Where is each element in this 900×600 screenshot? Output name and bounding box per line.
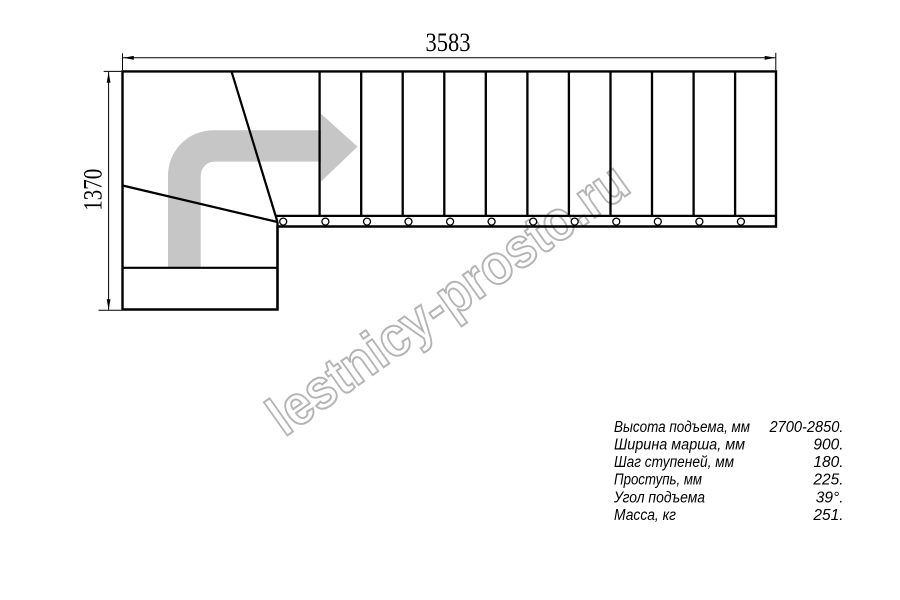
svg-text:Шаг ступеней, мм: Шаг ступеней, мм xyxy=(614,454,734,471)
svg-text:Проступь, мм: Проступь, мм xyxy=(614,472,702,489)
svg-text:Ширина марша, мм: Ширина марша, мм xyxy=(614,437,745,454)
svg-text:2700-2850.: 2700-2850. xyxy=(769,419,844,436)
svg-text:Масса, кг: Масса, кг xyxy=(614,507,676,524)
svg-text:1370: 1370 xyxy=(79,169,108,211)
svg-text:Угол подъема: Угол подъема xyxy=(613,489,705,506)
svg-text:Высота подъема, мм: Высота подъема, мм xyxy=(614,419,750,436)
svg-text:225.: 225. xyxy=(812,472,843,489)
svg-text:180.: 180. xyxy=(813,454,843,471)
svg-text:900.: 900. xyxy=(813,437,843,454)
svg-text:251.: 251. xyxy=(812,507,843,524)
svg-text:lestnicy-prosto.ru: lestnicy-prosto.ru xyxy=(255,149,640,447)
svg-text:3583: 3583 xyxy=(426,28,471,57)
svg-text:39°.: 39°. xyxy=(816,489,844,506)
